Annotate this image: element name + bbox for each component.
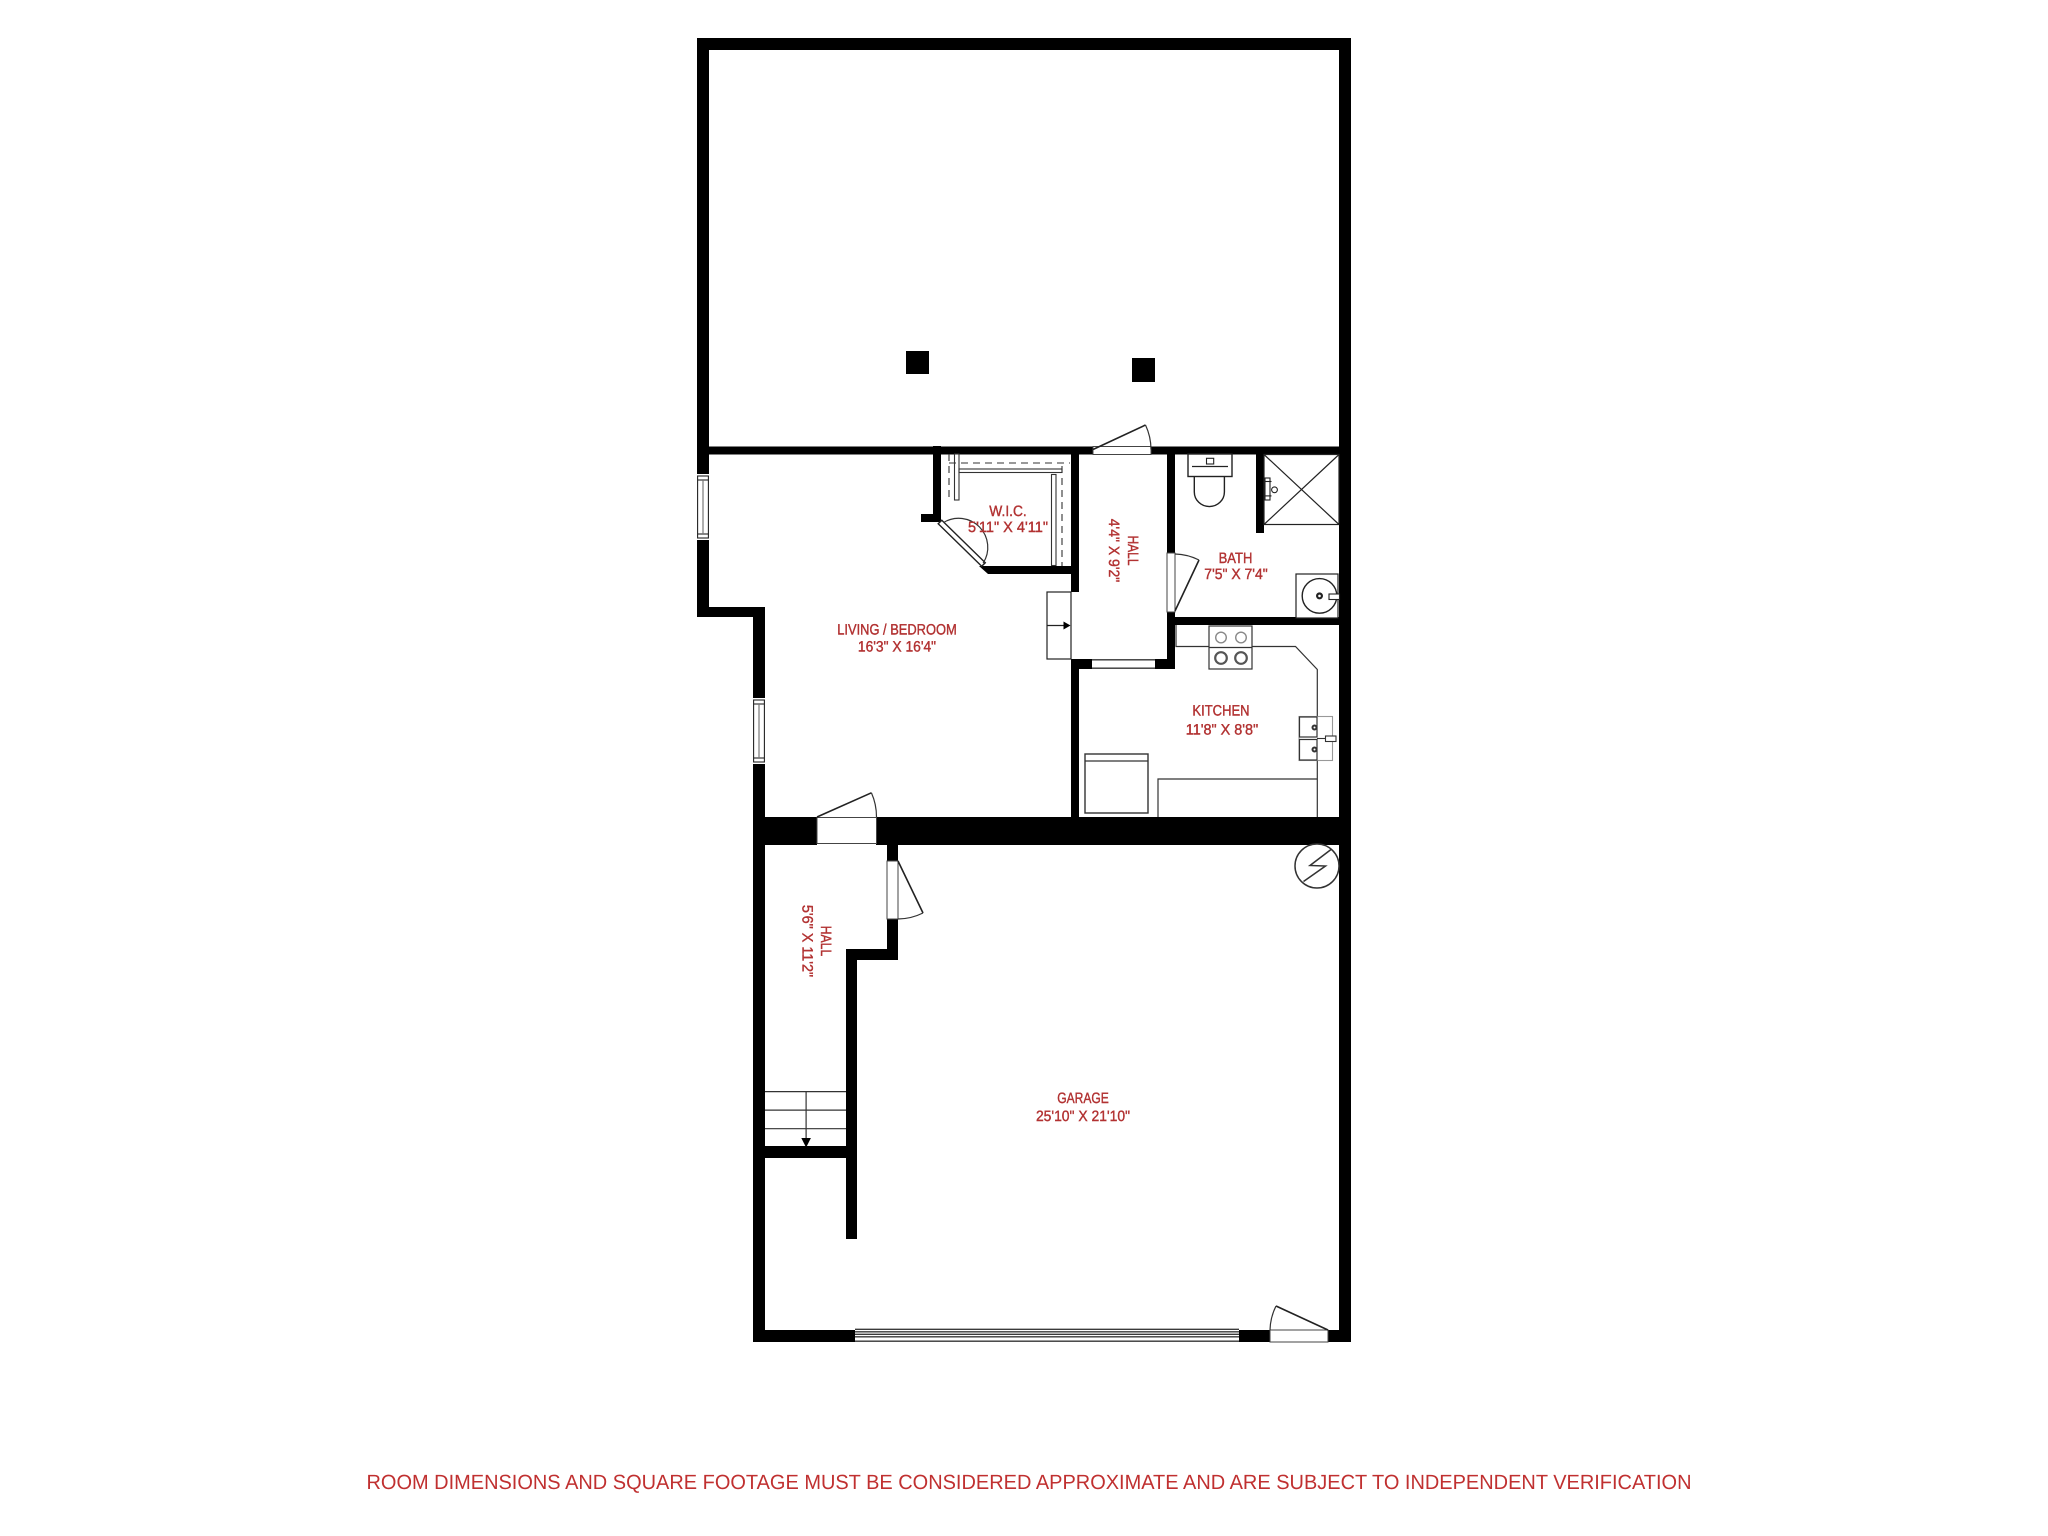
svg-text:KITCHEN: KITCHEN: [1192, 703, 1249, 720]
svg-text:BATH: BATH: [1219, 550, 1253, 567]
svg-text:W.I.C.: W.I.C.: [989, 503, 1027, 520]
svg-text:HALL: HALL: [817, 926, 834, 957]
svg-text:25'10" X 21'10": 25'10" X 21'10": [1036, 1108, 1130, 1125]
svg-text:11'8" X 8'8": 11'8" X 8'8": [1186, 721, 1258, 738]
svg-text:16'3" X 16'4": 16'3" X 16'4": [858, 638, 936, 655]
svg-text:5'6" X 11'2": 5'6" X 11'2": [799, 905, 816, 977]
svg-text:ROOM DIMENSIONS AND SQUARE FOO: ROOM DIMENSIONS AND SQUARE FOOTAGE MUST …: [367, 1471, 1692, 1494]
svg-text:7'5" X 7'4": 7'5" X 7'4": [1204, 566, 1267, 583]
svg-text:LIVING / BEDROOM: LIVING / BEDROOM: [837, 622, 957, 639]
svg-text:5'11" X 4'11": 5'11" X 4'11": [968, 519, 1048, 536]
svg-text:HALL: HALL: [1124, 536, 1141, 566]
svg-text:4'4" X 9'2": 4'4" X 9'2": [1105, 519, 1122, 583]
svg-text:GARAGE: GARAGE: [1057, 1090, 1109, 1107]
